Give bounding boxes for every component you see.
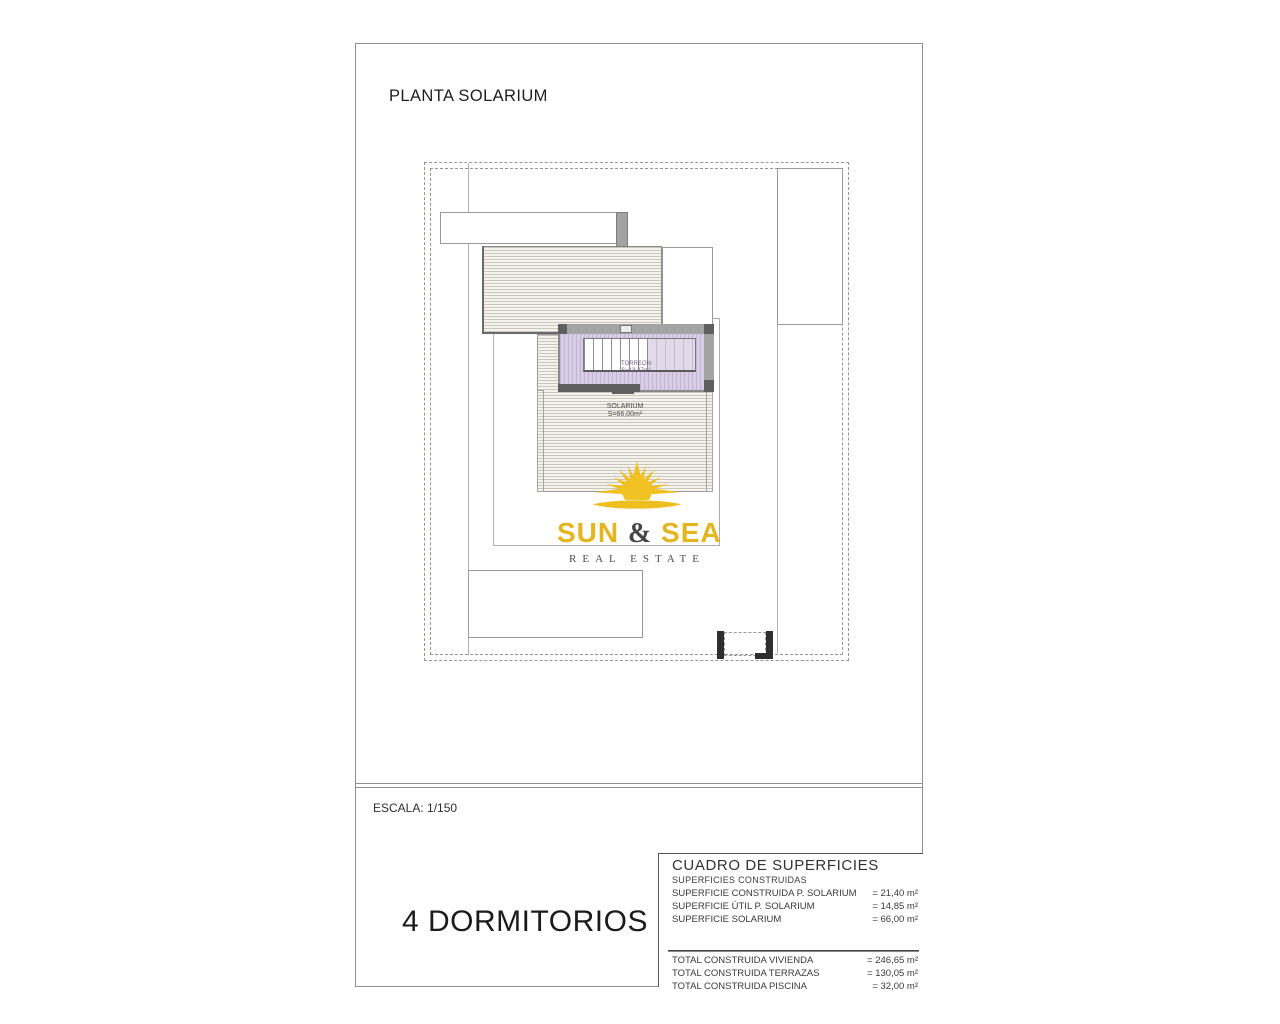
total-row: TOTAL CONSTRUIDA TERRAZAS = 130,05 m² [672, 968, 918, 979]
total-row: TOTAL CONSTRUIDA VIVIENDA = 246,65 m² [672, 955, 918, 966]
torreon-label-area: S=13,47m² [558, 368, 714, 375]
plan-title: PLANTA SOLARIUM [389, 87, 548, 106]
total-row: TOTAL CONSTRUIDA PISCINA = 32,00 m² [672, 981, 918, 992]
torreon-wall-cap-bottom-right [704, 380, 714, 392]
torreon-label-name: TORREON [558, 361, 714, 368]
surface-row: SUPERFICIE ÚTIL P. SOLARIUM = 14,85 m² [672, 901, 918, 912]
torreon-top-wall [558, 324, 714, 334]
solarium-label-area: S=66,00m² [537, 411, 713, 419]
surface-row: SUPERFICIE CONSTRUIDA P. SOLARIUM = 21,4… [672, 888, 918, 899]
scale-label: ESCALA: 1/150 [373, 801, 457, 815]
neighbor-block-right [777, 168, 843, 325]
screenshot-canvas: PLANTA SOLARIUM SOLARIUM S=66,00m² TORRE… [0, 0, 1280, 1024]
top-wall-column [616, 212, 628, 247]
surface-row-value: = 66,00 m² [872, 914, 918, 925]
solarium-label: SOLARIUM S=66,00m² [537, 403, 713, 419]
torreon-wall-tab [612, 386, 634, 394]
solarium-label-name: SOLARIUM [537, 403, 713, 411]
total-row-value: = 246,65 m² [867, 955, 918, 966]
total-row-value: = 130,05 m² [867, 968, 918, 979]
bedrooms-label: 4 DORMITORIOS [402, 905, 648, 939]
pergola-hatched-roof [482, 246, 662, 334]
total-row-label: TOTAL CONSTRUIDA VIVIENDA [672, 955, 813, 966]
pool-outline-bottom-left [468, 570, 643, 638]
torreon-label: TORREON S=13,47m² [558, 361, 714, 375]
sheet-divider-line-1 [355, 783, 923, 784]
surface-row-value: = 14,85 m² [872, 901, 918, 912]
surface-row-label: SUPERFICIE ÚTIL P. SOLARIUM [672, 901, 815, 912]
surface-row-label: SUPERFICIE SOLARIUM [672, 914, 781, 925]
sun-and-sea-logo: SUN & SEA REAL ESTATE [557, 456, 717, 565]
total-row-label: TOTAL CONSTRUIDA PISCINA [672, 981, 807, 992]
surface-table-rule [668, 950, 919, 952]
top-wall-bar [440, 212, 627, 244]
surface-row-value: = 21,40 m² [872, 888, 918, 899]
pool-step-wall-left [717, 631, 724, 659]
surface-row-label: SUPERFICIE CONSTRUIDA P. SOLARIUM [672, 888, 857, 899]
logo-tagline: REAL ESTATE [557, 553, 717, 565]
sun-icon [585, 456, 689, 514]
logo-word-sea: SEA [661, 517, 722, 548]
logo-wordmark: SUN & SEA [557, 517, 717, 550]
logo-ampersand: & [628, 518, 652, 549]
logo-word-sun: SUN [557, 517, 619, 548]
surface-row: SUPERFICIE SOLARIUM = 66,00 m² [672, 914, 918, 925]
surface-table-title: CUADRO DE SUPERFICIES [672, 857, 879, 874]
torreon-roof-hatch [620, 325, 632, 333]
torreon-wall-cap-left [558, 324, 567, 334]
sheet-divider-line-2 [355, 787, 923, 788]
roof-outline-box [662, 247, 713, 332]
torreon-wall-cap-right [704, 324, 714, 334]
pool-step-wall-foot [755, 653, 773, 659]
total-row-value: = 32,00 m² [872, 981, 918, 992]
total-row-label: TOTAL CONSTRUIDA TERRAZAS [672, 968, 819, 979]
surface-table-subtitle: SUPERFICIES CONSTRUIDAS [672, 875, 807, 885]
